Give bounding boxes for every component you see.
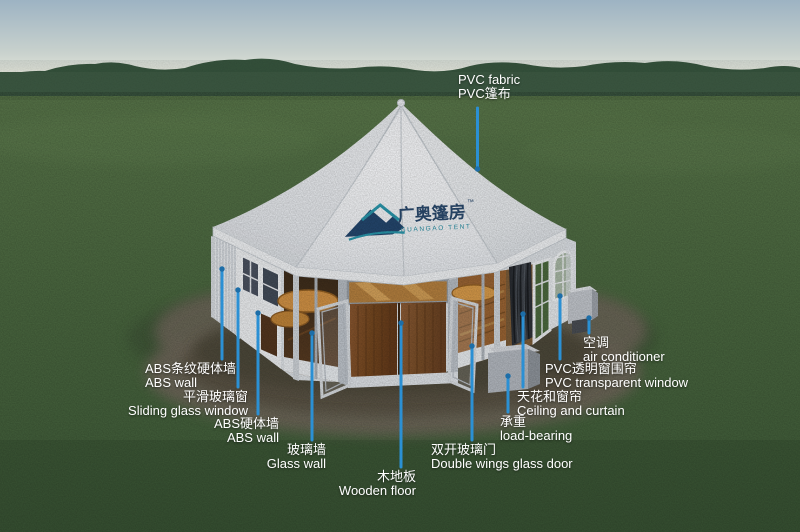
label-en: load-bearing	[500, 429, 572, 443]
label-cn: 天花和窗帘	[517, 390, 625, 404]
label-cn: PVC篷布	[458, 87, 520, 101]
label-cn: PVC透明窗围帘	[545, 362, 688, 376]
label-abs-striped-wall: ABS条纹硬体墙 ABS wall	[145, 362, 236, 389]
label-sliding-window: 平滑玻璃窗 Sliding glass window	[128, 390, 248, 417]
label-cn: ABS硬体墙	[214, 417, 279, 431]
label-en: Wooden floor	[339, 484, 416, 498]
label-air-conditioner: 空调 air conditioner	[583, 336, 665, 363]
annotated-tent-render: 广奥篷房 ™ GUANGAO TENT	[0, 0, 800, 532]
label-ceiling-curtain: 天花和窗帘 Ceiling and curtain	[517, 390, 625, 417]
label-cn: 空调	[583, 336, 665, 350]
label-en: Double wings glass door	[431, 457, 573, 471]
label-abs-wall: ABS硬体墙 ABS wall	[214, 417, 279, 444]
label-load-bearing: 承重 load-bearing	[500, 415, 572, 442]
label-cn: ABS条纹硬体墙	[145, 362, 236, 376]
label-pvc-window: PVC透明窗围帘 PVC transparent window	[545, 362, 688, 389]
label-wooden-floor: 木地板 Wooden floor	[339, 470, 416, 497]
label-cn: 木地板	[339, 470, 416, 484]
label-en: ABS wall	[145, 376, 236, 390]
label-en: air conditioner	[583, 350, 665, 364]
label-cn: 平滑玻璃窗	[128, 390, 248, 404]
label-en: Glass wall	[267, 457, 326, 471]
label-en: Ceiling and curtain	[517, 404, 625, 418]
label-en: Sliding glass window	[128, 404, 248, 418]
label-en: ABS wall	[214, 431, 279, 445]
label-double-glass-door: 双开玻璃门 Double wings glass door	[431, 443, 573, 470]
label-cn: 玻璃墙	[267, 443, 326, 457]
label-en: PVC fabric	[458, 73, 520, 87]
label-cn: 双开玻璃门	[431, 443, 573, 457]
label-pvc-fabric: PVC fabric PVC篷布	[458, 73, 520, 100]
label-glass-wall: 玻璃墙 Glass wall	[267, 443, 326, 470]
label-en: PVC transparent window	[545, 376, 688, 390]
scene-illustration: 广奥篷房 ™ GUANGAO TENT	[0, 0, 800, 532]
